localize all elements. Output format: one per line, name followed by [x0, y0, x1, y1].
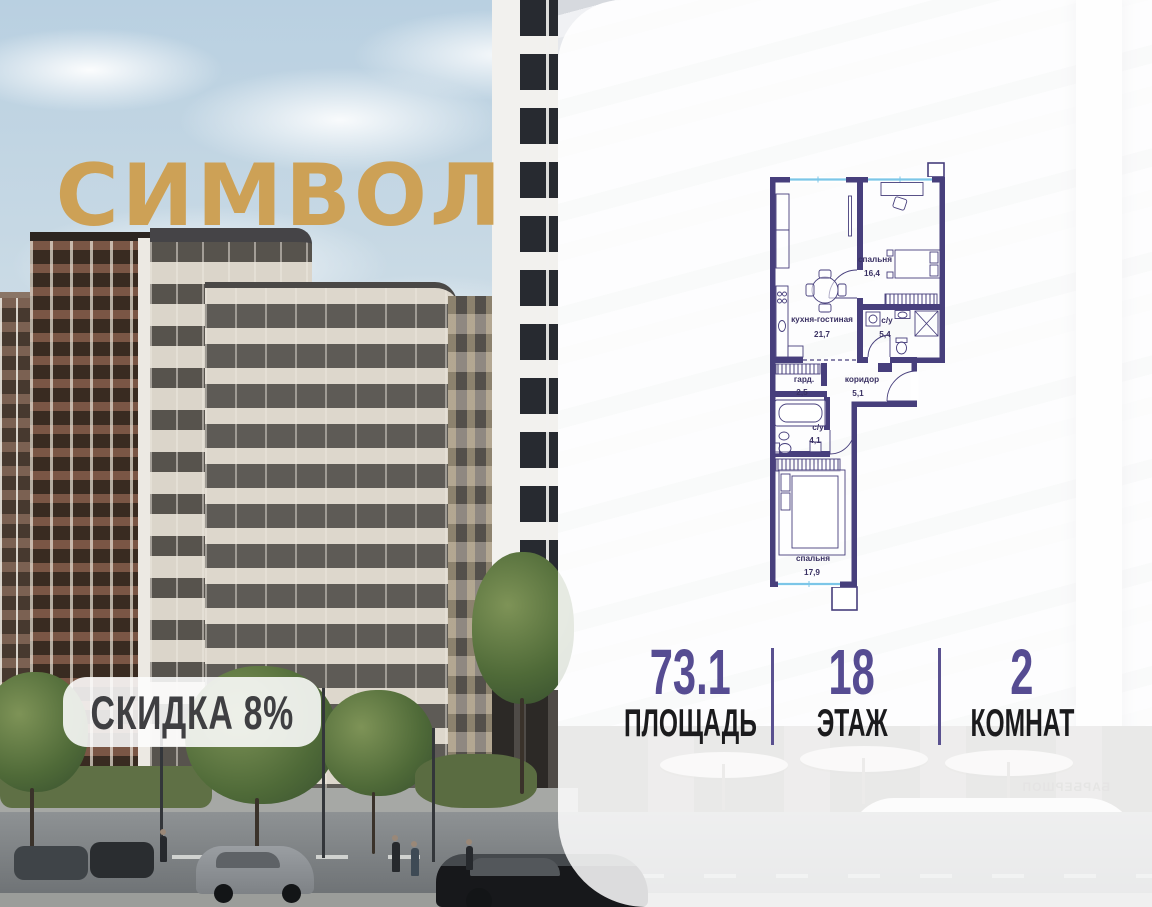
room-area-wardrobe: 2,5 — [796, 388, 808, 397]
stat-area-value: 73.1 — [650, 642, 731, 702]
stat-area: 73.1 ПЛОЩАДЬ — [610, 642, 770, 750]
room-label-kitchen: кухня-гостиная — [791, 315, 853, 324]
street-light-pole — [322, 688, 325, 858]
pedestrian — [160, 836, 167, 862]
room-area-kitchen: 21,7 — [814, 330, 830, 339]
room-label-bedroom1: спальня — [858, 255, 892, 264]
stat-rooms: 2 КОМНАТ — [942, 642, 1102, 750]
stat-divider — [938, 648, 941, 745]
room-label-corridor: коридор — [845, 375, 879, 384]
stat-floor-label: ЭТАЖ — [817, 702, 888, 746]
stat-floor-value: 18 — [829, 642, 875, 702]
street-light-pole — [432, 728, 435, 862]
listing-banner[interactable]: БАРБЕРШОП СИМВОЛ СКИДКА 8% — [0, 0, 1152, 907]
room-area-bathroom2: 4,1 — [809, 436, 821, 445]
discount-badge: СКИДКА 8% — [63, 677, 321, 747]
stat-rooms-value: 2 — [1010, 642, 1033, 702]
floor-plan: спальня 16,4 кухня-гостиная 21,7 с/у 5,4… — [768, 158, 948, 613]
pedestrian — [392, 842, 400, 872]
discount-badge-text: СКИДКА 8% — [90, 685, 293, 740]
stat-rooms-label: КОМНАТ — [970, 702, 1074, 746]
room-label-bedroom2: спальня — [796, 554, 830, 563]
pedestrian — [411, 848, 419, 876]
plan-shaft-bottom — [832, 587, 857, 610]
parked-car — [90, 842, 154, 878]
room-area-bathroom1: 5,4 — [879, 330, 891, 339]
room-label-bathroom1: с/у — [881, 316, 893, 325]
room-label-wardrobe: гард. — [794, 375, 814, 384]
plan-shaft-top — [928, 163, 944, 177]
room-area-bedroom1: 16,4 — [864, 269, 880, 278]
brand-logo: СИМВОЛ — [40, 146, 520, 246]
room-area-corridor: 5,1 — [852, 389, 864, 398]
parked-car — [14, 846, 88, 880]
pedestrian — [466, 846, 473, 870]
room-label-bathroom2: с/у — [812, 423, 824, 432]
stat-area-label: ПЛОЩАДЬ — [624, 702, 757, 746]
stat-floor: 18 ЭТАЖ — [772, 642, 932, 750]
room-area-bedroom2: 17,9 — [804, 568, 820, 577]
